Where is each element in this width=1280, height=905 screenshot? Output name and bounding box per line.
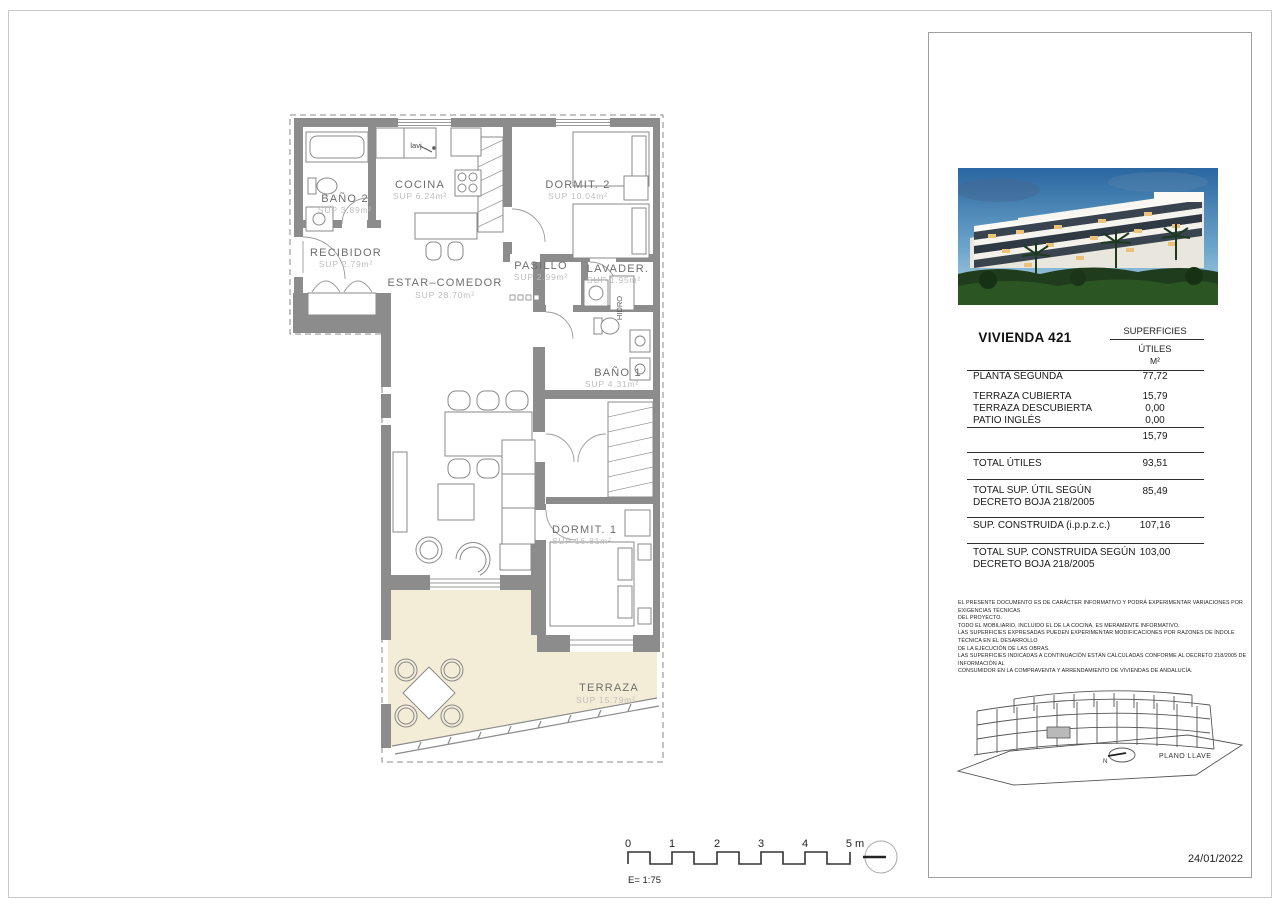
row-subtotal-value: 15,79 bbox=[1105, 431, 1205, 442]
scale-tick-3: 3 bbox=[758, 838, 764, 850]
highlighted-unit bbox=[1047, 727, 1070, 738]
room-label-recibidor: RECIBIDOR bbox=[310, 247, 382, 259]
bath2-fixtures bbox=[306, 132, 368, 231]
hall-cabinet bbox=[510, 295, 539, 300]
svg-text:N: N bbox=[1103, 759, 1107, 765]
disclaimer-line: DEL PROYECTO. bbox=[958, 615, 1250, 623]
row-total-construida-decreto-value: 103,00 bbox=[1105, 547, 1205, 558]
table-col-header: SUPERFICIES bbox=[1105, 326, 1205, 337]
room-sup-cocina: SUP 6.24m² bbox=[393, 191, 447, 201]
room-label-dormit1: DORMIT. 1 bbox=[552, 524, 617, 536]
room-sup-dormit2: SUP 10.04m² bbox=[548, 191, 608, 201]
keyplan-label: PLANO LLAVE bbox=[1159, 753, 1211, 760]
scale-text: E= 1:75 bbox=[628, 875, 661, 886]
scale-bar-wave bbox=[628, 852, 850, 864]
scale-tick-0: 0 bbox=[625, 838, 631, 850]
row-terraza-descubierta-value: 0,00 bbox=[1105, 403, 1205, 414]
disclaimer-text: EL PRESENTE DOCUMENTO ES DE CARÁCTER INF… bbox=[958, 600, 1250, 676]
scale-tick-4: 4 bbox=[802, 838, 808, 850]
table-col-unit: M² bbox=[1105, 356, 1205, 366]
room-label-cocina: COCINA bbox=[395, 179, 445, 191]
row-sup-construida-value: 107,16 bbox=[1105, 520, 1205, 531]
disclaimer-line: LAS SUPERFICIES EXPRESADAS PUEDEN EXPERI… bbox=[958, 630, 1250, 645]
table-rule-3 bbox=[967, 452, 1204, 453]
disclaimer-line: EL PRESENTE DOCUMENTO ES DE CARÁCTER INF… bbox=[958, 600, 1250, 615]
dwelling-title: VIVIENDA 421 bbox=[955, 330, 1095, 345]
scale-bar: 0 1 2 3 4 5 m E= 1:75 bbox=[615, 830, 905, 890]
room-label-lavadero: LAVADER. bbox=[587, 263, 649, 275]
room-sup-bano2: SUP 3.89m² bbox=[318, 205, 372, 215]
scale-tick-5: 5 m bbox=[846, 838, 864, 850]
row-terraza-cubierta-value: 15,79 bbox=[1105, 391, 1205, 402]
table-rule-5 bbox=[967, 517, 1204, 518]
room-sup-bano1: SUP 4.31m² bbox=[585, 379, 639, 389]
row-planta-segunda-value: 77,72 bbox=[1105, 371, 1205, 382]
table-rule-4 bbox=[967, 479, 1204, 480]
table-rule-2 bbox=[967, 427, 1204, 428]
keyplan-north-compass: N bbox=[1103, 748, 1135, 765]
row-total-utiles-value: 93,51 bbox=[1105, 458, 1205, 469]
scale-tick-2: 2 bbox=[714, 838, 720, 850]
plan-date: 24/01/2022 bbox=[1128, 853, 1243, 865]
key-plan: N PLANO LLAVE bbox=[952, 675, 1248, 793]
room-sup-dormit1: SUP 16.81m² bbox=[552, 536, 612, 546]
room-sup-lavadero: SUP 1.95m² bbox=[587, 275, 641, 285]
table-rule-6 bbox=[967, 543, 1204, 544]
row-patio-ingles-value: 0,00 bbox=[1105, 415, 1205, 426]
room-label-pasillo: PASILLO bbox=[514, 260, 567, 272]
room-sup-terraza: SUP 15.79m² bbox=[576, 695, 636, 705]
header-underline bbox=[1110, 339, 1204, 340]
room-sup-recibidor: SUP 2.79m² bbox=[319, 259, 373, 269]
room-sup-pasillo: SUP 2.99m² bbox=[514, 272, 568, 282]
room-label-bano1: BAÑO 1 bbox=[594, 366, 642, 379]
room-sup-estar: SUP 28.70m² bbox=[415, 290, 475, 300]
plan-sheet: lavj BAÑO 2 SUP 3.89m² COCINA SUP 6.24m²… bbox=[0, 0, 1280, 905]
room-label-dormit2: DORMIT. 2 bbox=[545, 179, 610, 191]
north-symbol bbox=[863, 841, 897, 873]
floor-plan: lavj BAÑO 2 SUP 3.89m² COCINA SUP 6.24m²… bbox=[288, 112, 666, 774]
scale-tick-1: 1 bbox=[669, 838, 675, 850]
room-label-bano2: BAÑO 2 bbox=[321, 192, 369, 205]
room-label-terraza: TERRAZA bbox=[579, 682, 639, 694]
room-label-estar: ESTAR–COMEDOR bbox=[387, 277, 502, 289]
building-render-photo bbox=[958, 168, 1218, 305]
label-lavj: lavj bbox=[410, 141, 422, 150]
label-hidro: HIDRO bbox=[615, 296, 624, 320]
row-total-util-decreto-value: 85,49 bbox=[1105, 486, 1205, 497]
disclaimer-line: LAS SUPERFICIES INDICADAS A CONTINUACIÓN… bbox=[958, 653, 1250, 668]
table-col-sub: ÚTILES bbox=[1105, 344, 1205, 355]
